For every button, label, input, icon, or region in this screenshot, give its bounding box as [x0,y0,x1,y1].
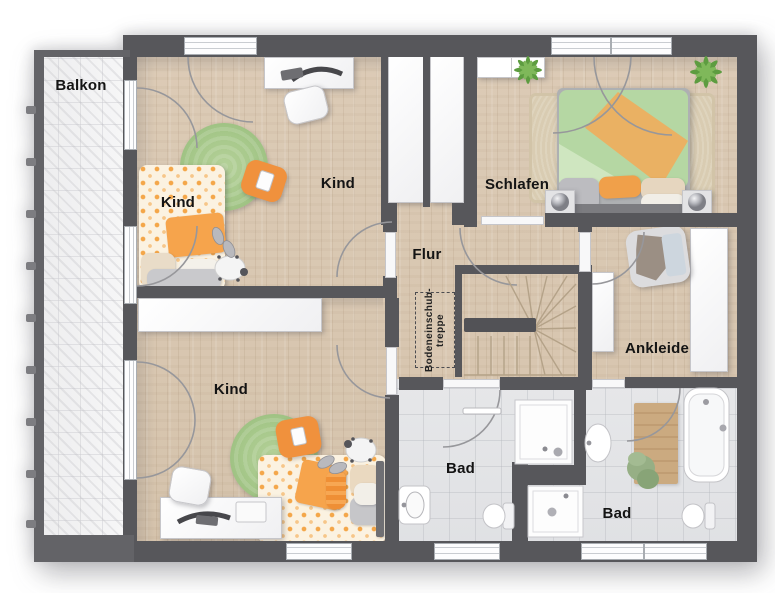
railing-post [26,418,36,426]
railing-post [26,470,36,478]
balcony-floor [36,50,123,543]
window [286,543,352,560]
room-label-flur: Flur [397,246,457,263]
window [124,226,137,304]
floor-plan: Bodeneinschub- treppe Balkon Kind Kind S… [0,0,775,593]
room-label-balkon: Balkon [46,77,116,94]
balcony-door [124,360,137,480]
blanket-orange [165,212,227,258]
wardrobe [138,298,322,332]
wall-bad-ost-north [625,377,737,388]
room-label-kind-nw: Kind [148,194,208,211]
bath-mat-wood [634,403,678,484]
pillow-striped [326,471,346,509]
attic-stairs-annotation: Bodeneinschub- treppe [415,292,455,368]
built-in-closet [388,53,424,203]
room-label-kind-n: Kind [308,175,368,192]
wall-stair-west [455,274,462,377]
wall-kind-divider [137,286,397,298]
window [434,543,500,560]
window [644,543,707,560]
railing-post [26,520,36,528]
balcony-rail-top [34,50,130,57]
wall-shower-west [512,462,528,543]
balcony-rail-left [34,50,44,543]
door-leaf [443,379,500,388]
nightstand [545,190,575,214]
window [184,37,257,55]
room-label-bad-mitte: Bad [433,460,488,477]
door-leaf [481,216,544,225]
room-label-schlafen: Schlafen [477,176,557,193]
desk [264,57,354,89]
door-leaf [386,347,397,395]
headboard [376,461,384,537]
wall-kind-sw-east-upper [385,298,399,347]
wall-schlafen-south [545,213,737,227]
wall-schlafen-west [464,45,477,227]
wall-between-baths [574,390,586,466]
wall-closet-nook-left [381,45,388,207]
floorplan-canvas: Bodeneinschub- treppe Balkon Kind Kind S… [0,0,775,593]
railing-post [26,262,36,270]
window [611,37,672,55]
bed-master [557,88,690,216]
wall-nook-stub [452,203,470,225]
desk [160,497,282,539]
balcony-rail-bottom [34,535,134,562]
railing-post [26,158,36,166]
railing-post [26,314,36,322]
wall-kind-n-east-upper [383,203,397,232]
door-leaf [385,232,396,278]
room-label-bad-ost: Bad [588,505,646,522]
floor-cushion-orange [274,415,323,460]
pillow-orange [598,175,641,199]
built-in-closet [430,51,464,203]
railing-post [26,366,36,374]
desk-chair [167,465,213,507]
shelf-cabinet [477,57,545,78]
railing-post [26,210,36,218]
nightstand [682,190,712,214]
room-label-ankleide: Ankleide [618,340,696,357]
window [581,543,644,560]
wall-kind-sw-east-lower [385,395,399,543]
wall-bad-north-a [399,377,443,390]
bed-kid-nw [139,165,225,290]
wardrobe [592,272,614,352]
wall-right [737,35,757,562]
balcony-door [124,80,137,150]
wall-closet-nook-mid [423,45,430,207]
window [551,37,611,55]
wall-stair-north [455,265,592,274]
door-leaf [592,379,625,388]
folded-towels [661,233,687,277]
attic-stairs-label-line1: Bodeneinschub- [424,288,436,372]
wall-ankleide-west [578,270,592,390]
room-label-kind-sw: Kind [201,381,261,398]
railing-post [26,106,36,114]
armchair-clothes [624,224,691,289]
attic-stairs-label-line2: treppe [435,314,447,347]
door-leaf [579,232,591,272]
